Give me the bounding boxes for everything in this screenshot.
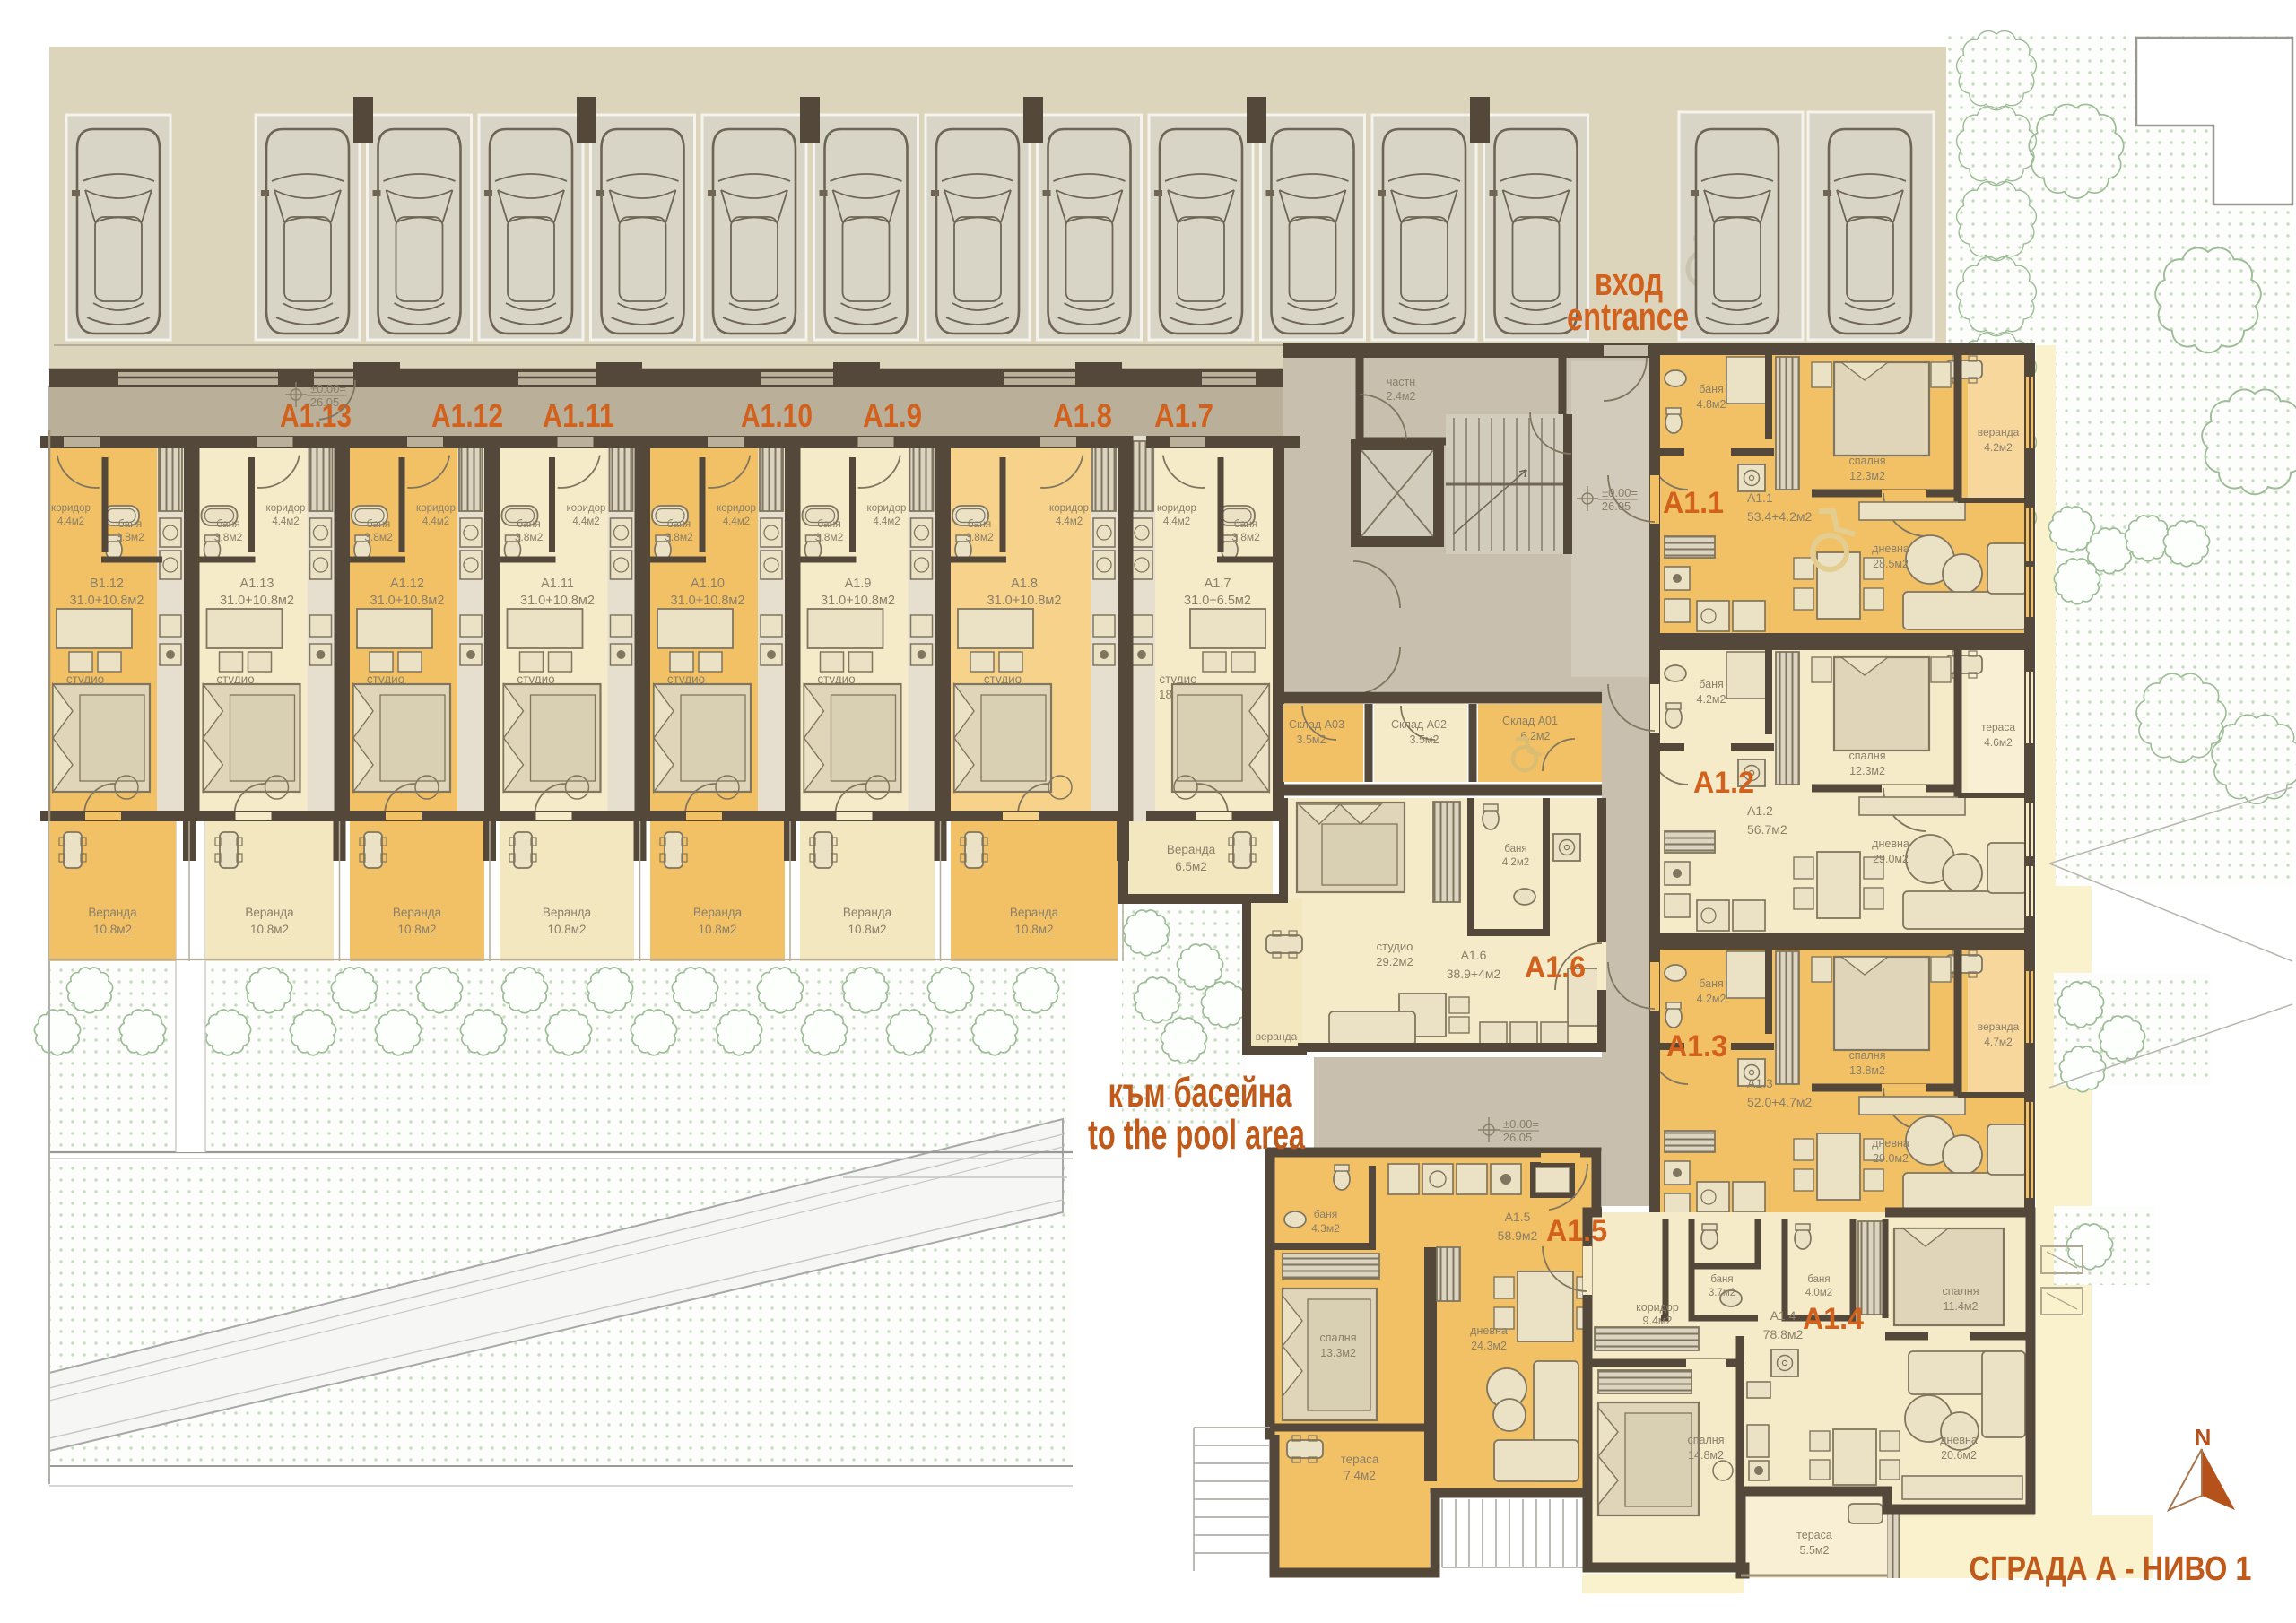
svg-text:3.7м2: 3.7м2 — [1709, 1288, 1735, 1298]
svg-text:3.5м2: 3.5м2 — [1297, 733, 1326, 746]
svg-text:31.0+10.8м2: 31.0+10.8м2 — [671, 594, 745, 608]
svg-text:Веранда: Веранда — [543, 906, 592, 919]
svg-text:баня: баня — [216, 517, 239, 530]
svg-text:дневна: дневна — [1872, 542, 1909, 555]
svg-text:баня: баня — [1234, 517, 1257, 530]
svg-text:4.4м2: 4.4м2 — [272, 516, 299, 527]
svg-text:13.8м2: 13.8м2 — [1849, 1064, 1885, 1077]
svg-text:±0.00=: ±0.00= — [310, 382, 346, 395]
svg-text:4.2м2: 4.2м2 — [1697, 693, 1726, 706]
svg-text:±0.00=: ±0.00= — [1503, 1117, 1539, 1131]
svg-text:A1.8: A1.8 — [1011, 577, 1038, 591]
svg-text:A1.11: A1.11 — [543, 397, 614, 434]
svg-text:3.8м2: 3.8м2 — [815, 531, 844, 543]
svg-text:9.4м2: 9.4м2 — [1643, 1315, 1673, 1327]
svg-text:13.3м2: 13.3м2 — [1320, 1347, 1356, 1359]
svg-text:56.7м2: 56.7м2 — [1747, 822, 1787, 837]
svg-text:баня: баня — [118, 517, 142, 530]
svg-text:3.8м2: 3.8м2 — [364, 531, 393, 543]
svg-text:баня: баня — [968, 517, 991, 530]
svg-text:31.0+10.8м2: 31.0+10.8м2 — [370, 594, 445, 608]
svg-text:A1.1: A1.1 — [1747, 490, 1773, 505]
svg-text:A1.4: A1.4 — [1770, 1308, 1796, 1323]
svg-text:A1.12: A1.12 — [390, 577, 424, 591]
svg-text:4.8м2: 4.8м2 — [1697, 398, 1726, 411]
svg-text:5.5м2: 5.5м2 — [1800, 1544, 1830, 1557]
svg-text:A1.13: A1.13 — [240, 577, 274, 591]
svg-text:A1.9: A1.9 — [845, 577, 872, 591]
svg-text:спалня: спалня — [1849, 455, 1886, 467]
svg-text:26.05: 26.05 — [310, 395, 340, 409]
svg-text:4.4м2: 4.4м2 — [1163, 516, 1190, 527]
svg-text:A1.6: A1.6 — [1461, 948, 1487, 962]
svg-text:A1.5: A1.5 — [1546, 1214, 1607, 1248]
svg-text:A1.1: A1.1 — [1663, 486, 1724, 520]
svg-text:коридор: коридор — [867, 503, 907, 514]
svg-text:24.3м2: 24.3м2 — [1471, 1340, 1507, 1352]
svg-text:коридор: коридор — [567, 503, 606, 514]
svg-text:баня: баня — [817, 517, 840, 530]
svg-text:тераса: тераса — [1796, 1529, 1832, 1541]
svg-text:entrance: entrance — [1567, 295, 1689, 339]
svg-text:12.3м2: 12.3м2 — [1849, 470, 1885, 482]
svg-text:10.8м2: 10.8м2 — [93, 923, 132, 936]
svg-text:A1.3: A1.3 — [1666, 1029, 1727, 1063]
svg-text:31.0+10.8м2: 31.0+10.8м2 — [821, 594, 895, 608]
svg-text:баня: баня — [1699, 678, 1724, 690]
svg-text:коридор: коридор — [416, 503, 456, 514]
svg-text:Веранда: Веранда — [1010, 906, 1059, 919]
svg-text:53.4+4.2м2: 53.4+4.2м2 — [1747, 509, 1813, 524]
svg-text:баня: баня — [667, 517, 691, 530]
svg-text:4.4м2: 4.4м2 — [1056, 516, 1083, 527]
svg-text:4.4м2: 4.4м2 — [723, 516, 750, 527]
svg-text:A1.7: A1.7 — [1154, 397, 1213, 434]
svg-text:A1.2: A1.2 — [1747, 803, 1773, 818]
svg-text:Веранда: Веранда — [88, 906, 137, 919]
svg-text:7.4м2: 7.4м2 — [1344, 1469, 1376, 1482]
svg-text:A1.12: A1.12 — [431, 397, 503, 434]
svg-text:B1.12: B1.12 — [90, 577, 124, 591]
svg-text:A1.7: A1.7 — [1205, 577, 1231, 591]
svg-text:10.8м2: 10.8м2 — [250, 923, 289, 936]
svg-text:78.8м2: 78.8м2 — [1763, 1327, 1804, 1341]
svg-text:спалня: спалня — [1849, 1049, 1886, 1062]
svg-text:A1.5: A1.5 — [1505, 1210, 1531, 1224]
svg-text:31.0+10.8м2: 31.0+10.8м2 — [520, 594, 595, 608]
svg-text:N: N — [2195, 1424, 2212, 1451]
svg-text:31.0+6.5м2: 31.0+6.5м2 — [1184, 594, 1251, 608]
svg-text:към басейна: към басейна — [1109, 1069, 1292, 1115]
svg-text:баня: баня — [1699, 383, 1724, 395]
svg-text:спалня: спалня — [1688, 1434, 1725, 1446]
svg-text:A1.6: A1.6 — [1525, 950, 1586, 985]
svg-text:4.2м2: 4.2м2 — [1697, 993, 1726, 1005]
svg-text:29.2м2: 29.2м2 — [1376, 955, 1413, 968]
svg-text:3.8м2: 3.8м2 — [965, 531, 994, 543]
svg-text:6.5м2: 6.5м2 — [1175, 860, 1207, 873]
svg-text:коридор: коридор — [51, 503, 91, 514]
svg-text:52.0+4.7м2: 52.0+4.7м2 — [1747, 1095, 1813, 1109]
svg-text:A1.4: A1.4 — [1803, 1302, 1864, 1336]
svg-text:10.8м2: 10.8м2 — [1014, 923, 1053, 936]
svg-text:3.8м2: 3.8м2 — [214, 531, 243, 543]
svg-text:коридор: коридор — [717, 503, 756, 514]
svg-text:31.0+10.8м2: 31.0+10.8м2 — [987, 594, 1062, 608]
svg-text:студио: студио — [1377, 940, 1413, 953]
svg-text:20.6м2: 20.6м2 — [1941, 1449, 1977, 1462]
svg-text:Веранда: Веранда — [843, 906, 892, 919]
svg-text:3.8м2: 3.8м2 — [665, 531, 693, 543]
svg-text:частн: частн — [1387, 376, 1415, 388]
svg-text:Веранда: Веранда — [393, 906, 442, 919]
svg-text:дневна: дневна — [1872, 838, 1909, 850]
svg-text:4.0м2: 4.0м2 — [1805, 1288, 1832, 1298]
svg-text:31.0+10.8м2: 31.0+10.8м2 — [220, 594, 294, 608]
svg-text:±0.00=: ±0.00= — [1602, 486, 1638, 499]
svg-text:A1.10: A1.10 — [691, 577, 725, 591]
svg-text:Склад А01: Склад А01 — [1502, 715, 1558, 727]
svg-text:коридор: коридор — [266, 503, 306, 514]
svg-text:to the pool area: to the pool area — [1088, 1111, 1305, 1158]
svg-text:4.3м2: 4.3м2 — [1311, 1222, 1340, 1235]
svg-text:Веранда: Веранда — [1167, 843, 1216, 856]
svg-text:баня: баня — [1504, 844, 1526, 855]
svg-text:4.2м2: 4.2м2 — [1502, 857, 1529, 868]
svg-text:4.4м2: 4.4м2 — [57, 516, 84, 527]
svg-text:баня: баня — [1710, 1274, 1733, 1285]
svg-text:4.2м2: 4.2м2 — [1984, 441, 2013, 454]
svg-text:28.5м2: 28.5м2 — [1873, 558, 1909, 570]
svg-text:тераса: тераса — [1981, 721, 2015, 733]
svg-text:2.4м2: 2.4м2 — [1387, 390, 1416, 403]
svg-text:4.6м2: 4.6м2 — [1984, 736, 2013, 749]
svg-text:Веранда: Веранда — [245, 906, 294, 919]
svg-text:баня: баня — [367, 517, 390, 530]
svg-text:баня: баня — [1699, 977, 1724, 990]
svg-text:баня: баня — [1314, 1208, 1337, 1220]
svg-text:29.0м2: 29.0м2 — [1873, 853, 1909, 865]
svg-text:4.4м2: 4.4м2 — [422, 516, 449, 527]
svg-text:10.8м2: 10.8м2 — [698, 923, 736, 936]
svg-text:коридор: коридор — [1049, 503, 1089, 514]
svg-text:A1.11: A1.11 — [541, 577, 574, 591]
svg-text:дневна: дневна — [1940, 1434, 1978, 1446]
svg-text:веранда: веранда — [1978, 426, 2020, 438]
svg-text:спалня: спалня — [1320, 1332, 1357, 1344]
svg-text:Склад А02: Склад А02 — [1391, 718, 1447, 731]
svg-text:дневна: дневна — [1470, 1324, 1508, 1337]
svg-text:тераса: тераса — [1341, 1453, 1379, 1466]
svg-text:баня: баня — [1807, 1274, 1830, 1285]
svg-text:4.4м2: 4.4м2 — [572, 516, 599, 527]
svg-text:спалня: спалня — [1943, 1285, 1979, 1298]
svg-text:A1.8: A1.8 — [1053, 397, 1112, 434]
svg-text:14.8м2: 14.8м2 — [1688, 1449, 1724, 1462]
svg-text:26.05: 26.05 — [1503, 1131, 1533, 1144]
svg-text:A1.3: A1.3 — [1747, 1076, 1773, 1090]
svg-text:веранда: веранда — [1256, 1030, 1298, 1043]
svg-text:10.8м2: 10.8м2 — [547, 923, 586, 936]
svg-text:СГРАДА А - НИВО 1: СГРАДА А - НИВО 1 — [1970, 1550, 2252, 1588]
svg-text:A1.9: A1.9 — [863, 397, 922, 434]
svg-text:4.4м2: 4.4м2 — [873, 516, 900, 527]
svg-text:A1.10: A1.10 — [741, 397, 813, 434]
svg-text:3.8м2: 3.8м2 — [515, 531, 544, 543]
svg-text:38.9+4м2: 38.9+4м2 — [1447, 967, 1501, 981]
svg-text:10.8м2: 10.8м2 — [397, 923, 436, 936]
svg-text:10.8м2: 10.8м2 — [848, 923, 886, 936]
svg-text:Веранда: Веранда — [693, 906, 743, 919]
svg-text:12.3м2: 12.3м2 — [1849, 765, 1885, 777]
svg-text:58.9м2: 58.9м2 — [1498, 1228, 1538, 1243]
svg-text:спалня: спалня — [1849, 750, 1886, 762]
svg-text:баня: баня — [517, 517, 540, 530]
svg-text:31.0+10.8м2: 31.0+10.8м2 — [70, 594, 144, 608]
svg-text:3.8м2: 3.8м2 — [116, 531, 144, 543]
svg-text:коридор: коридор — [1157, 503, 1196, 514]
svg-text:A1.2: A1.2 — [1693, 766, 1754, 800]
svg-text:11.4м2: 11.4м2 — [1944, 1300, 1979, 1313]
svg-text:3.8м2: 3.8м2 — [1231, 531, 1260, 543]
svg-text:29.0м2: 29.0м2 — [1873, 1152, 1909, 1165]
svg-text:веранда: веранда — [1978, 1020, 2020, 1033]
svg-text:Склад А03: Склад А03 — [1289, 718, 1344, 731]
svg-text:4.7м2: 4.7м2 — [1984, 1036, 2013, 1048]
svg-text:дневна: дневна — [1872, 1137, 1909, 1150]
svg-text:коридор: коридор — [1636, 1301, 1679, 1314]
